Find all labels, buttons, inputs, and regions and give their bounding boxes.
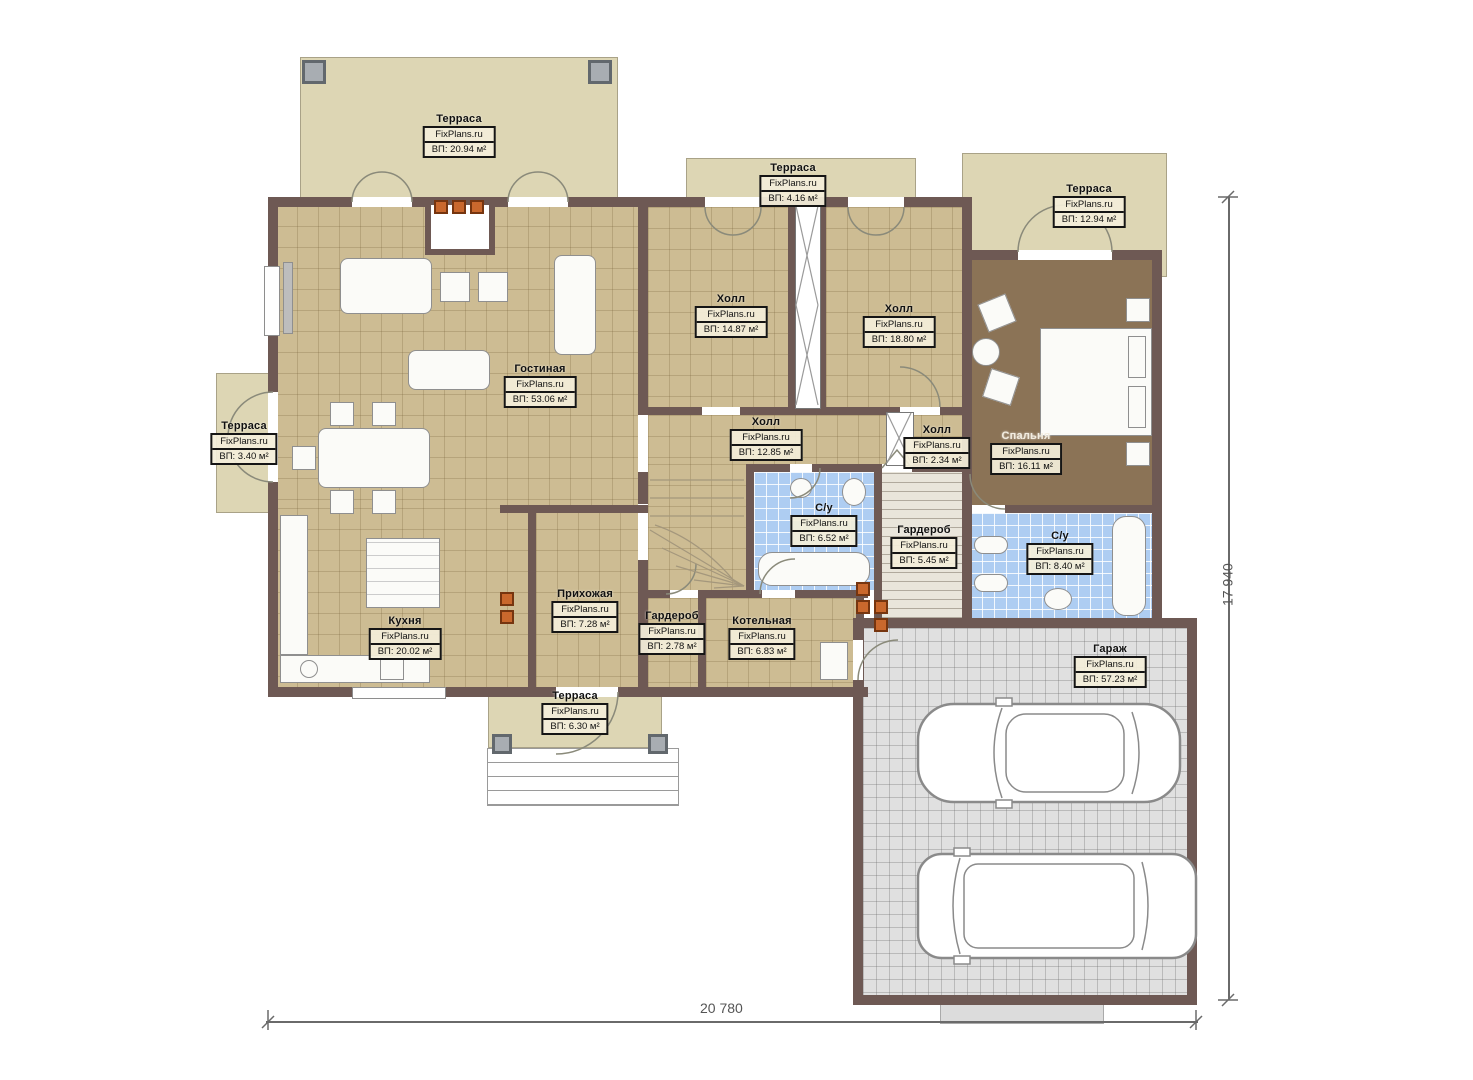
towel-radiator bbox=[974, 574, 1008, 592]
vent-block bbox=[500, 592, 514, 606]
area-value: ВП: 5.45 м² bbox=[892, 552, 955, 567]
watermark: FixPlans.ru bbox=[730, 630, 793, 643]
terrace-post bbox=[648, 734, 668, 754]
wall-corridor-top-c bbox=[940, 407, 972, 415]
door-gap-terrace-tl-b bbox=[508, 197, 568, 207]
wall-right-bedroom bbox=[1152, 250, 1162, 628]
terrace-post bbox=[588, 60, 612, 84]
dimension-width-label: 20 780 bbox=[700, 1000, 743, 1016]
armchair bbox=[478, 272, 508, 302]
floor-plan: Терраса FixPlans.ru ВП: 20.94 м² Терраса… bbox=[0, 0, 1473, 1080]
watermark: FixPlans.ru bbox=[371, 630, 440, 643]
watermark: FixPlans.ru bbox=[761, 177, 824, 190]
wall-shaft-left bbox=[788, 197, 795, 412]
watermark: FixPlans.ru bbox=[212, 435, 275, 448]
door-gap-bedroom-terrace bbox=[1018, 250, 1112, 260]
stove bbox=[380, 658, 404, 680]
watermark: FixPlans.ru bbox=[1055, 198, 1124, 211]
watermark: FixPlans.ru bbox=[640, 625, 703, 638]
watermark: FixPlans.ru bbox=[553, 603, 616, 616]
area-value: ВП: 2.34 м² bbox=[905, 452, 968, 467]
room-label-terrace-top-left: Терраса FixPlans.ru ВП: 20.94 м² bbox=[423, 113, 496, 158]
area-value: ВП: 4.16 м² bbox=[761, 190, 824, 205]
watermark: FixPlans.ru bbox=[792, 517, 855, 530]
room-label-garage: Гараж FixPlans.ru ВП: 57.23 м² bbox=[1074, 643, 1147, 688]
dining-chair bbox=[372, 402, 396, 426]
watermark: FixPlans.ru bbox=[992, 445, 1060, 458]
room-label-boiler: Котельная FixPlans.ru ВП: 6.83 м² bbox=[728, 615, 795, 660]
dining-chair bbox=[330, 490, 354, 514]
dimension-height-label: 17 940 bbox=[1219, 563, 1235, 606]
window-living-left bbox=[264, 266, 280, 336]
room-label-terrace-top-mid: Терраса FixPlans.ru ВП: 4.16 м² bbox=[759, 162, 826, 207]
area-value: ВП: 20.02 м² bbox=[371, 643, 440, 658]
door-gap-terrace-tl-a bbox=[352, 197, 412, 207]
wall-boiler-top-b bbox=[700, 590, 762, 598]
wall-kitchen-entry bbox=[528, 508, 536, 688]
dining-table bbox=[318, 428, 430, 488]
kitchen-sink bbox=[300, 660, 318, 678]
vent-block bbox=[874, 600, 888, 614]
area-value: ВП: 57.23 м² bbox=[1076, 671, 1145, 686]
terrace-steps bbox=[487, 748, 679, 806]
watermark: FixPlans.ru bbox=[1076, 658, 1145, 671]
area-value: ВП: 8.40 м² bbox=[1028, 558, 1091, 573]
area-value: ВП: 7.28 м² bbox=[553, 616, 616, 631]
area-value: ВП: 6.52 м² bbox=[792, 530, 855, 545]
terrace-post bbox=[492, 734, 512, 754]
area-value: ВП: 2.78 м² bbox=[640, 638, 703, 653]
vent-block bbox=[434, 200, 448, 214]
terrace-post bbox=[302, 60, 326, 84]
area-value: ВП: 14.87 м² bbox=[697, 321, 766, 336]
vent-block bbox=[856, 582, 870, 596]
watermark: FixPlans.ru bbox=[892, 539, 955, 552]
room-label-bath2: С/у FixPlans.ru ВП: 8.40 м² bbox=[1026, 530, 1093, 575]
pillow bbox=[1128, 386, 1146, 428]
door-gap-garage bbox=[853, 640, 863, 680]
watermark: FixPlans.ru bbox=[697, 308, 766, 321]
stair-floor bbox=[648, 464, 746, 590]
area-value: ВП: 18.80 м² bbox=[865, 331, 934, 346]
dining-chair bbox=[292, 446, 316, 470]
room-label-hall4: Холл FixPlans.ru ВП: 2.34 м² bbox=[903, 424, 970, 469]
watermark: FixPlans.ru bbox=[543, 705, 606, 718]
pillow bbox=[1128, 336, 1146, 378]
room-label-wardrobe1: Гардероб FixPlans.ru ВП: 5.45 м² bbox=[890, 524, 957, 569]
vent-block bbox=[470, 200, 484, 214]
area-value: ВП: 53.06 м² bbox=[506, 391, 575, 406]
room-label-wardrobe2: Гардероб FixPlans.ru ВП: 2.78 м² bbox=[638, 610, 705, 655]
watermark: FixPlans.ru bbox=[506, 378, 575, 391]
room-label-hall2: Холл FixPlans.ru ВП: 18.80 м² bbox=[863, 303, 936, 348]
room-label-terrace-bottom: Терраса FixPlans.ru ВП: 6.30 м² bbox=[541, 690, 608, 735]
wall-garage-top bbox=[853, 618, 1197, 628]
area-value: ВП: 16.11 м² bbox=[992, 458, 1060, 473]
area-value: ВП: 6.83 м² bbox=[730, 643, 793, 658]
area-value: ВП: 20.94 м² bbox=[425, 141, 494, 156]
watermark: FixPlans.ru bbox=[1028, 545, 1091, 558]
room-label-bath1: С/у FixPlans.ru ВП: 6.52 м² bbox=[790, 502, 857, 547]
vent-block bbox=[874, 618, 888, 632]
vent-block bbox=[856, 600, 870, 614]
wall-boiler-top-a bbox=[648, 590, 670, 598]
room-label-living: Гостиная FixPlans.ru ВП: 53.06 м² bbox=[504, 363, 577, 408]
area-value: ВП: 3.40 м² bbox=[212, 448, 275, 463]
wall-bedroom-bottom bbox=[1005, 505, 1152, 513]
wall-garage-right bbox=[1187, 618, 1197, 1005]
dining-chair bbox=[330, 402, 354, 426]
room-label-hall3: Холл FixPlans.ru ВП: 12.85 м² bbox=[730, 416, 803, 461]
wall-corridor-top-a bbox=[648, 407, 702, 415]
room-label-terrace-left: Терраса FixPlans.ru ВП: 3.40 м² bbox=[210, 420, 277, 465]
wall-corridor-bottom-b bbox=[812, 464, 882, 472]
door-gap-terrace-tm bbox=[705, 197, 761, 207]
sink-2 bbox=[1044, 588, 1072, 610]
wall-garage-bottom bbox=[853, 995, 1197, 1005]
wall-living-hall-upper bbox=[638, 197, 648, 415]
dining-chair bbox=[372, 490, 396, 514]
room-label-kitchen: Кухня FixPlans.ru ВП: 20.02 м² bbox=[369, 615, 442, 660]
armchair bbox=[440, 272, 470, 302]
vent-block bbox=[452, 200, 466, 214]
wall-entry-hall-a bbox=[638, 472, 648, 504]
tv-panel bbox=[283, 262, 293, 334]
kitchen-counter-left bbox=[280, 515, 308, 655]
sofa-2 bbox=[554, 255, 596, 355]
watermark: FixPlans.ru bbox=[905, 439, 968, 452]
wall-stair-right bbox=[746, 464, 754, 590]
vent-shaft-1 bbox=[795, 205, 821, 409]
kitchen-island bbox=[366, 538, 440, 608]
watermark: FixPlans.ru bbox=[865, 318, 934, 331]
coffee-table bbox=[408, 350, 490, 390]
nightstand bbox=[1126, 298, 1150, 322]
bathtub bbox=[758, 552, 870, 586]
wall-living-kitchen bbox=[500, 505, 648, 513]
door-gap-hall2 bbox=[848, 197, 904, 207]
nightstand bbox=[1126, 442, 1150, 466]
sofa bbox=[340, 258, 432, 314]
area-value: ВП: 12.85 м² bbox=[732, 444, 801, 459]
watermark: FixPlans.ru bbox=[732, 431, 801, 444]
window-kitchen-bottom bbox=[352, 687, 446, 699]
bathtub-2 bbox=[1112, 516, 1146, 616]
area-value: ВП: 12.94 м² bbox=[1055, 211, 1124, 226]
room-label-bedroom: Спальня FixPlans.ru ВП: 16.11 м² bbox=[990, 430, 1062, 475]
dimension-line-horizontal bbox=[266, 1021, 1198, 1023]
room-label-entry: Прихожая FixPlans.ru ВП: 7.28 м² bbox=[551, 588, 618, 633]
wall-bath1-wardrobe1 bbox=[874, 464, 882, 618]
area-value: ВП: 6.30 м² bbox=[543, 718, 606, 733]
room-label-terrace-top-right: Терраса FixPlans.ru ВП: 12.94 м² bbox=[1053, 183, 1126, 228]
vent-block bbox=[500, 610, 514, 624]
boiler-unit bbox=[820, 642, 848, 680]
bedroom-table bbox=[972, 338, 1000, 366]
sink bbox=[790, 478, 812, 498]
room-label-hall1: Холл FixPlans.ru ВП: 14.87 м² bbox=[695, 293, 768, 338]
watermark: FixPlans.ru bbox=[425, 128, 494, 141]
towel-radiator bbox=[974, 536, 1008, 554]
wall-hall2-bedroom bbox=[962, 250, 972, 417]
